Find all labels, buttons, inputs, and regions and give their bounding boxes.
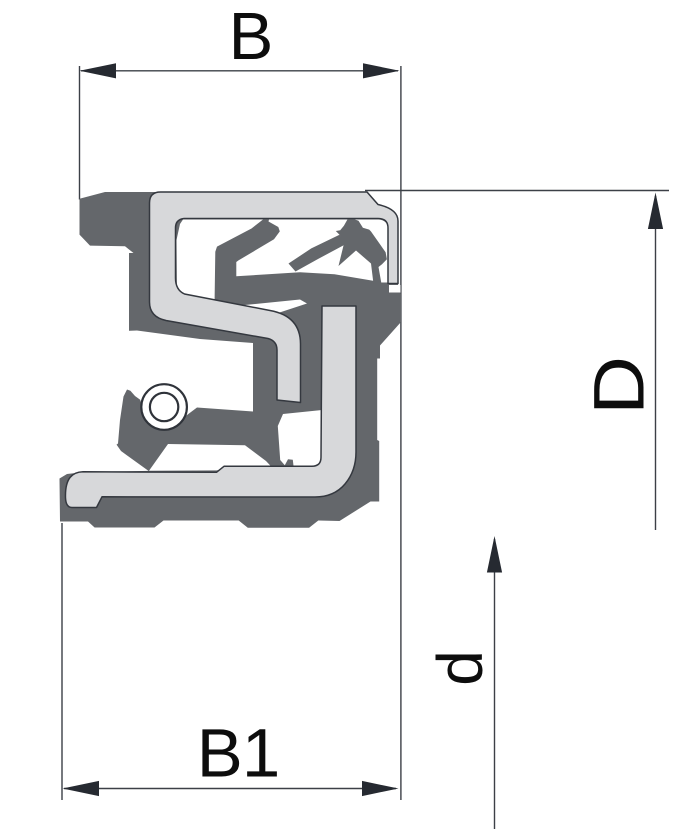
svg-text:D: D <box>580 356 659 415</box>
svg-text:B1: B1 <box>197 715 279 792</box>
svg-text:B: B <box>229 0 274 74</box>
svg-text:d: d <box>424 650 496 686</box>
